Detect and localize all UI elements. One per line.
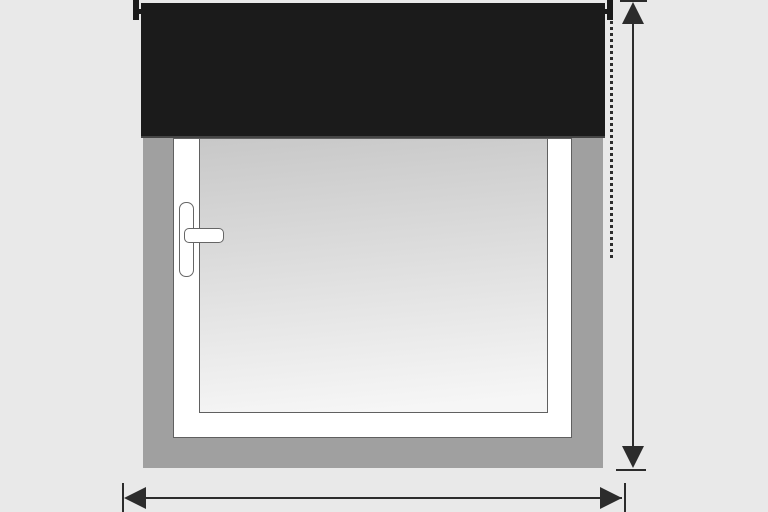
blind-mounting-bracket-right xyxy=(607,0,613,20)
width-measure-cap-right xyxy=(624,483,626,512)
height-arrow-up-icon xyxy=(622,2,644,24)
window-handle-lever xyxy=(184,228,224,243)
width-measure-line xyxy=(126,497,622,499)
blind-measurement-diagram xyxy=(0,0,768,512)
blind-drop-dotted-line xyxy=(610,21,613,258)
roller-blind xyxy=(141,3,605,138)
height-measure-line xyxy=(632,4,634,466)
height-arrow-down-icon xyxy=(622,446,644,468)
width-arrow-left-icon xyxy=(124,487,146,509)
window-glass xyxy=(199,138,548,413)
width-arrow-right-icon xyxy=(600,487,622,509)
height-measure-cap-bottom xyxy=(616,469,646,471)
